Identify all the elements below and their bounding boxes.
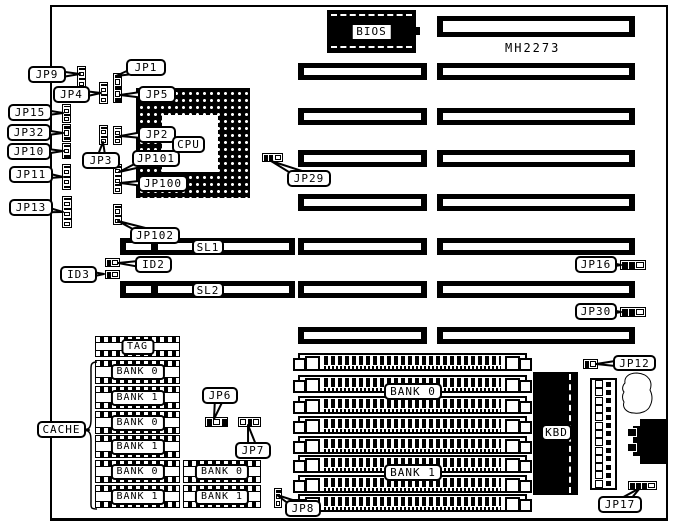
pin (606, 481, 611, 486)
simm-socket (298, 353, 527, 371)
jumper-pin-capped (629, 262, 635, 269)
jumper-pin-open (101, 88, 106, 93)
expansion-slot (437, 150, 635, 167)
jumper-pin-open (101, 139, 106, 143)
bank0-simm-label: BANK 0 (384, 383, 442, 400)
jumper-pin-capped (622, 262, 628, 269)
simm-latch (519, 358, 532, 371)
jp8-jumper (274, 488, 282, 508)
jp3-jumper (99, 125, 108, 145)
cache-chip: BANK 1 (95, 386, 180, 409)
jumper-pin-open (115, 219, 120, 223)
simm-bracket (305, 399, 320, 414)
pin-hole (595, 455, 603, 463)
cache-chip: BANK 0 (95, 411, 180, 434)
pin-hole (595, 413, 603, 421)
jumper-pin-open (636, 309, 644, 315)
jumper-pin-capped (642, 483, 647, 489)
jumper-pin-capped (115, 215, 121, 217)
jumper-pin-capped (622, 309, 628, 316)
pin (606, 448, 611, 453)
jp32-jumper (62, 124, 71, 142)
cache-chip-label: BANK 1 (110, 489, 164, 505)
jumper-pin-capped (115, 75, 121, 78)
jumper-pin-capped (264, 155, 268, 161)
jp5-label: JP5 (138, 86, 176, 103)
simm-contacts (324, 429, 501, 432)
jumper-pin-open (112, 260, 118, 265)
jumper-pin-open (115, 179, 120, 183)
jumper-pin-capped (207, 419, 212, 426)
simm-contacts (324, 449, 501, 452)
pin (606, 473, 611, 478)
expansion-slot (437, 238, 635, 255)
slot-contact-area (304, 68, 421, 75)
slot-contact-area (443, 155, 629, 162)
jp8-label: JP8 (285, 500, 321, 517)
id3-jumper (105, 270, 120, 279)
simm-bracket (305, 478, 320, 493)
jumper-pin-capped (64, 114, 70, 116)
cache-chip: BANK 0 (95, 460, 180, 483)
cache-chip: BANK 0 (183, 460, 261, 483)
expansion-slot (437, 327, 635, 344)
expansion-slot (437, 63, 635, 80)
jp10-jumper (62, 143, 71, 159)
jp6-label: JP6 (202, 387, 238, 404)
slot-contact-area (443, 68, 629, 75)
pin-header (590, 378, 617, 490)
jp16-jumper (620, 260, 646, 270)
slot-contact-area (443, 113, 629, 120)
pin (606, 398, 611, 403)
simm-contacts (324, 488, 501, 491)
pin-hole (595, 463, 603, 471)
slot-contact-area (304, 243, 421, 250)
simm-socket (298, 416, 527, 434)
jp6-jumper (205, 417, 228, 427)
jumper-pin-open (115, 91, 120, 96)
slot-contact-area (443, 286, 629, 293)
simm-socket (298, 494, 527, 512)
kbd-label: KBD (541, 424, 572, 441)
sl2-label: SL2 (192, 282, 224, 298)
jp13-label: JP13 (9, 199, 53, 216)
jp1-jp5-jumper (113, 73, 122, 103)
pin-hole (595, 422, 603, 430)
simm-bracket (505, 419, 520, 434)
cpu-label: CPU (172, 136, 205, 153)
simm-latch (519, 380, 532, 393)
cache-chip: BANK 0 (95, 360, 180, 384)
simm-socket (298, 436, 527, 454)
jumper-pin-capped (636, 483, 641, 489)
jumper-pin-open (115, 139, 120, 143)
pin-header-row (592, 480, 615, 487)
simm-bracket (305, 439, 320, 454)
jumper-pin-open (115, 131, 120, 135)
expansion-slot (298, 194, 427, 211)
jumper-pin-capped (101, 127, 107, 129)
jumper-pin-capped (276, 490, 281, 493)
slot-contact-area (443, 199, 629, 206)
jp9-label: JP9 (28, 66, 66, 83)
jumper-pin-open (276, 501, 280, 506)
expansion-slot (437, 281, 635, 298)
expansion-slot (437, 108, 635, 125)
jumper-pin-open (64, 117, 69, 121)
simm-contacts (324, 366, 501, 369)
expansion-slot (298, 150, 427, 167)
jumper-pin-capped (64, 176, 70, 179)
simm-bracket (505, 378, 520, 393)
cache-chip-label: BANK 0 (195, 464, 249, 480)
jp15-label: JP15 (8, 104, 52, 121)
jumper-pin-open (64, 109, 69, 113)
jp32-label: JP32 (7, 124, 51, 141)
jumper-pin-capped (115, 136, 121, 138)
jumper-pin-capped (630, 483, 635, 489)
jp4-jumper (99, 82, 108, 104)
jumper-pin-open (636, 262, 644, 268)
jp7-label: JP7 (235, 442, 271, 459)
simm-bracket (305, 419, 320, 434)
expansion-slot (298, 327, 427, 344)
simm-contacts (324, 409, 501, 412)
slot-contact-area (443, 332, 629, 339)
jp11-jumper (62, 164, 71, 190)
jumper-pin-capped (115, 98, 121, 101)
jumper-pin-open (115, 79, 120, 84)
cache-chip: BANK 1 (95, 435, 180, 458)
cache-chip: TAG (95, 336, 180, 357)
pin-header-row (592, 455, 615, 462)
pin-header-row (592, 381, 615, 388)
jumper-pin-capped (64, 145, 70, 148)
pin-header-row (592, 389, 615, 396)
pin-hole (595, 380, 603, 388)
jp12-label: JP12 (613, 355, 656, 371)
slot-contact-area (443, 21, 629, 32)
simm-bracket (505, 439, 520, 454)
jumper-pin-open (64, 202, 70, 207)
jumper-pin-open (648, 483, 655, 488)
cache-chip: BANK 1 (95, 485, 180, 508)
jumper-pin-capped (115, 184, 121, 186)
jumper-pin-open (79, 72, 84, 77)
slot-contact-area (443, 243, 629, 250)
jumper-pin-capped (629, 309, 635, 316)
simm-contacts (324, 419, 501, 428)
pin (606, 415, 611, 420)
simm-bracket (505, 399, 520, 414)
jp15-jumper (62, 104, 71, 123)
pin-hole (595, 397, 603, 405)
pin-hole (595, 405, 603, 413)
simm-contacts (324, 497, 501, 506)
jumper-pin-capped (115, 175, 121, 177)
pin-hole (595, 438, 603, 446)
jp30-label: JP30 (575, 303, 617, 320)
pin-hole (595, 430, 603, 438)
cache-chip-label: BANK 0 (110, 364, 164, 380)
jp29-jumper (262, 153, 283, 162)
jumper-pin-capped (101, 94, 107, 97)
simm-latch (519, 460, 532, 473)
slot-contact-area (304, 286, 421, 293)
pin-header-row (592, 439, 615, 446)
jumper-pin-open (253, 419, 259, 425)
jp101-label: JP101 (132, 150, 180, 167)
jumper-pin-capped (269, 155, 273, 161)
simm-contacts (324, 356, 501, 365)
expansion-slot (437, 194, 635, 211)
jumper-pin-capped (115, 86, 121, 89)
jumper-pin-open (64, 180, 69, 185)
keyboard-din-connector (640, 419, 667, 464)
jumper-pin-open (115, 169, 120, 173)
pin-header-row (592, 414, 615, 421)
jumper-pin-capped (107, 272, 111, 278)
jumper-pin-open (64, 212, 70, 217)
pin-header-row (592, 422, 615, 429)
id2-jumper (105, 258, 120, 267)
jp17-jumper (628, 481, 657, 490)
jumper-pin-open (101, 98, 106, 103)
cache-label: CACHE (37, 421, 86, 438)
expansion-slot (298, 281, 427, 298)
jp2-label: JP2 (138, 126, 176, 143)
bios-dashed-line (331, 46, 412, 48)
expansion-slot (298, 238, 427, 255)
simm-bracket (505, 458, 520, 473)
jp9-jumper (77, 66, 86, 88)
jp16-label: JP16 (575, 256, 617, 273)
simm-contacts (324, 399, 501, 408)
jp2-jumper (113, 126, 122, 145)
jumper-pin-capped (64, 186, 70, 189)
jp30-jumper (620, 307, 646, 317)
jumper-pin-open (101, 130, 106, 134)
jumper-pin-open (276, 494, 280, 499)
bios-dashed-line (331, 14, 412, 16)
slot-contact-area (304, 332, 421, 339)
jp3-label: JP3 (82, 152, 120, 169)
jumper-pin-capped (101, 84, 107, 87)
simm-latch (519, 401, 532, 414)
cache-chip-label: BANK 0 (110, 464, 164, 480)
jp100-label: JP100 (138, 175, 188, 192)
simm-latch (519, 499, 532, 512)
pin-hole (595, 447, 603, 455)
jumper-pin-capped (64, 208, 71, 211)
simm-bracket (505, 356, 520, 371)
jp10-label: JP10 (7, 143, 51, 160)
pin (606, 440, 611, 445)
jumper-pin-open (64, 130, 69, 135)
jp4-label: JP4 (53, 86, 90, 103)
keyboard-din-connector-tab (627, 428, 637, 437)
jumper-pin-capped (64, 155, 70, 158)
jumper-pin-capped (585, 361, 589, 368)
id3-label: ID3 (60, 266, 97, 283)
jumper-pin-capped (64, 137, 70, 140)
pin-header-row (592, 406, 615, 413)
jp29-label: JP29 (287, 170, 331, 187)
sl1-label: SL1 (192, 239, 224, 255)
jumper-pin-open (240, 419, 246, 425)
pin-hole (595, 480, 603, 488)
pin-hole (595, 471, 603, 479)
jumper-pin-capped (115, 128, 121, 130)
jumper-pin-capped (64, 126, 70, 129)
jp13-jumper (62, 196, 72, 228)
simm-contacts (324, 439, 501, 448)
pin-header-row (592, 464, 615, 471)
cache-chip-label: BANK 1 (195, 489, 249, 505)
simm-latch (519, 441, 532, 454)
slot-contact-area (304, 155, 421, 162)
jumper-pin-capped (64, 218, 71, 221)
pin (606, 456, 611, 461)
jumper-pin-capped (107, 260, 111, 266)
pin-hole (595, 388, 603, 396)
jumper-pin-open (590, 361, 596, 367)
simm-latch (519, 480, 532, 493)
cache-chip-label: BANK 0 (110, 415, 164, 431)
keyboard-din-connector-tab (627, 443, 637, 452)
slot-contact-area (304, 113, 421, 120)
pin-header-row (592, 447, 615, 454)
jp17-label: JP17 (598, 496, 642, 513)
pin (606, 465, 611, 470)
motherboard-jumper-diagram: MH2273 BIOSTAGBANK 0BANK 1BANK 0BANK 1BA… (0, 0, 673, 527)
jumper-pin-capped (79, 78, 85, 81)
jumper-pin-open (213, 419, 220, 425)
jp102-label: JP102 (130, 227, 180, 244)
jumper-pin-open (64, 222, 70, 227)
jumper-pin-open (64, 170, 69, 175)
pin-header-row (592, 397, 615, 404)
jumper-pin-capped (64, 166, 70, 169)
slot-segment-divider (151, 281, 158, 298)
simm-bracket (305, 356, 320, 371)
bios-chip: BIOS (327, 10, 416, 53)
pin (606, 390, 611, 395)
simm-bracket (505, 478, 520, 493)
pin-header-row (592, 472, 615, 479)
jp12-jumper (583, 359, 598, 369)
jumper-pin-open (115, 188, 120, 192)
jumper-pin-capped (64, 198, 71, 201)
bank1-simm-label: BANK 1 (384, 464, 442, 481)
simm-bracket (305, 458, 320, 473)
board-model-text: MH2273 (505, 41, 560, 55)
jumper-pin-open (275, 155, 281, 160)
bios-label: BIOS (352, 25, 391, 39)
pin (606, 382, 611, 387)
jumper-pin-capped (115, 206, 121, 208)
jp102-jumper (113, 204, 122, 225)
jumper-pin-open (115, 209, 120, 213)
simm-latch (519, 421, 532, 434)
expansion-slot (298, 63, 427, 80)
jp7-jumper (238, 417, 261, 427)
cache-chip-label: TAG (121, 339, 154, 355)
expansion-slot (437, 16, 635, 37)
jumper-pin-capped (64, 106, 70, 108)
jp11-label: JP11 (9, 166, 53, 183)
jumper-pin-open (112, 272, 118, 277)
pin (606, 431, 611, 436)
simm-bracket (505, 497, 520, 512)
jp1-label: JP1 (126, 59, 166, 76)
pin (606, 423, 611, 428)
expansion-slot (298, 108, 427, 125)
pin-header-row (592, 430, 615, 437)
simm-bracket (305, 378, 320, 393)
pin (606, 407, 611, 412)
jumper-pin-capped (101, 136, 107, 138)
jumper-pin-open (64, 149, 69, 154)
slot-contact-area (304, 199, 421, 206)
simm-contacts (324, 507, 501, 510)
cache-chip-label: BANK 1 (110, 439, 164, 455)
bios-pin-nub (416, 27, 420, 35)
cache-chip: BANK 1 (183, 485, 261, 508)
cache-chip-label: BANK 1 (110, 390, 164, 406)
jumper-pin-capped (222, 419, 227, 426)
jumper-pin-capped (79, 68, 85, 71)
jumper-pin-capped (248, 419, 252, 426)
id2-label: ID2 (135, 256, 172, 273)
